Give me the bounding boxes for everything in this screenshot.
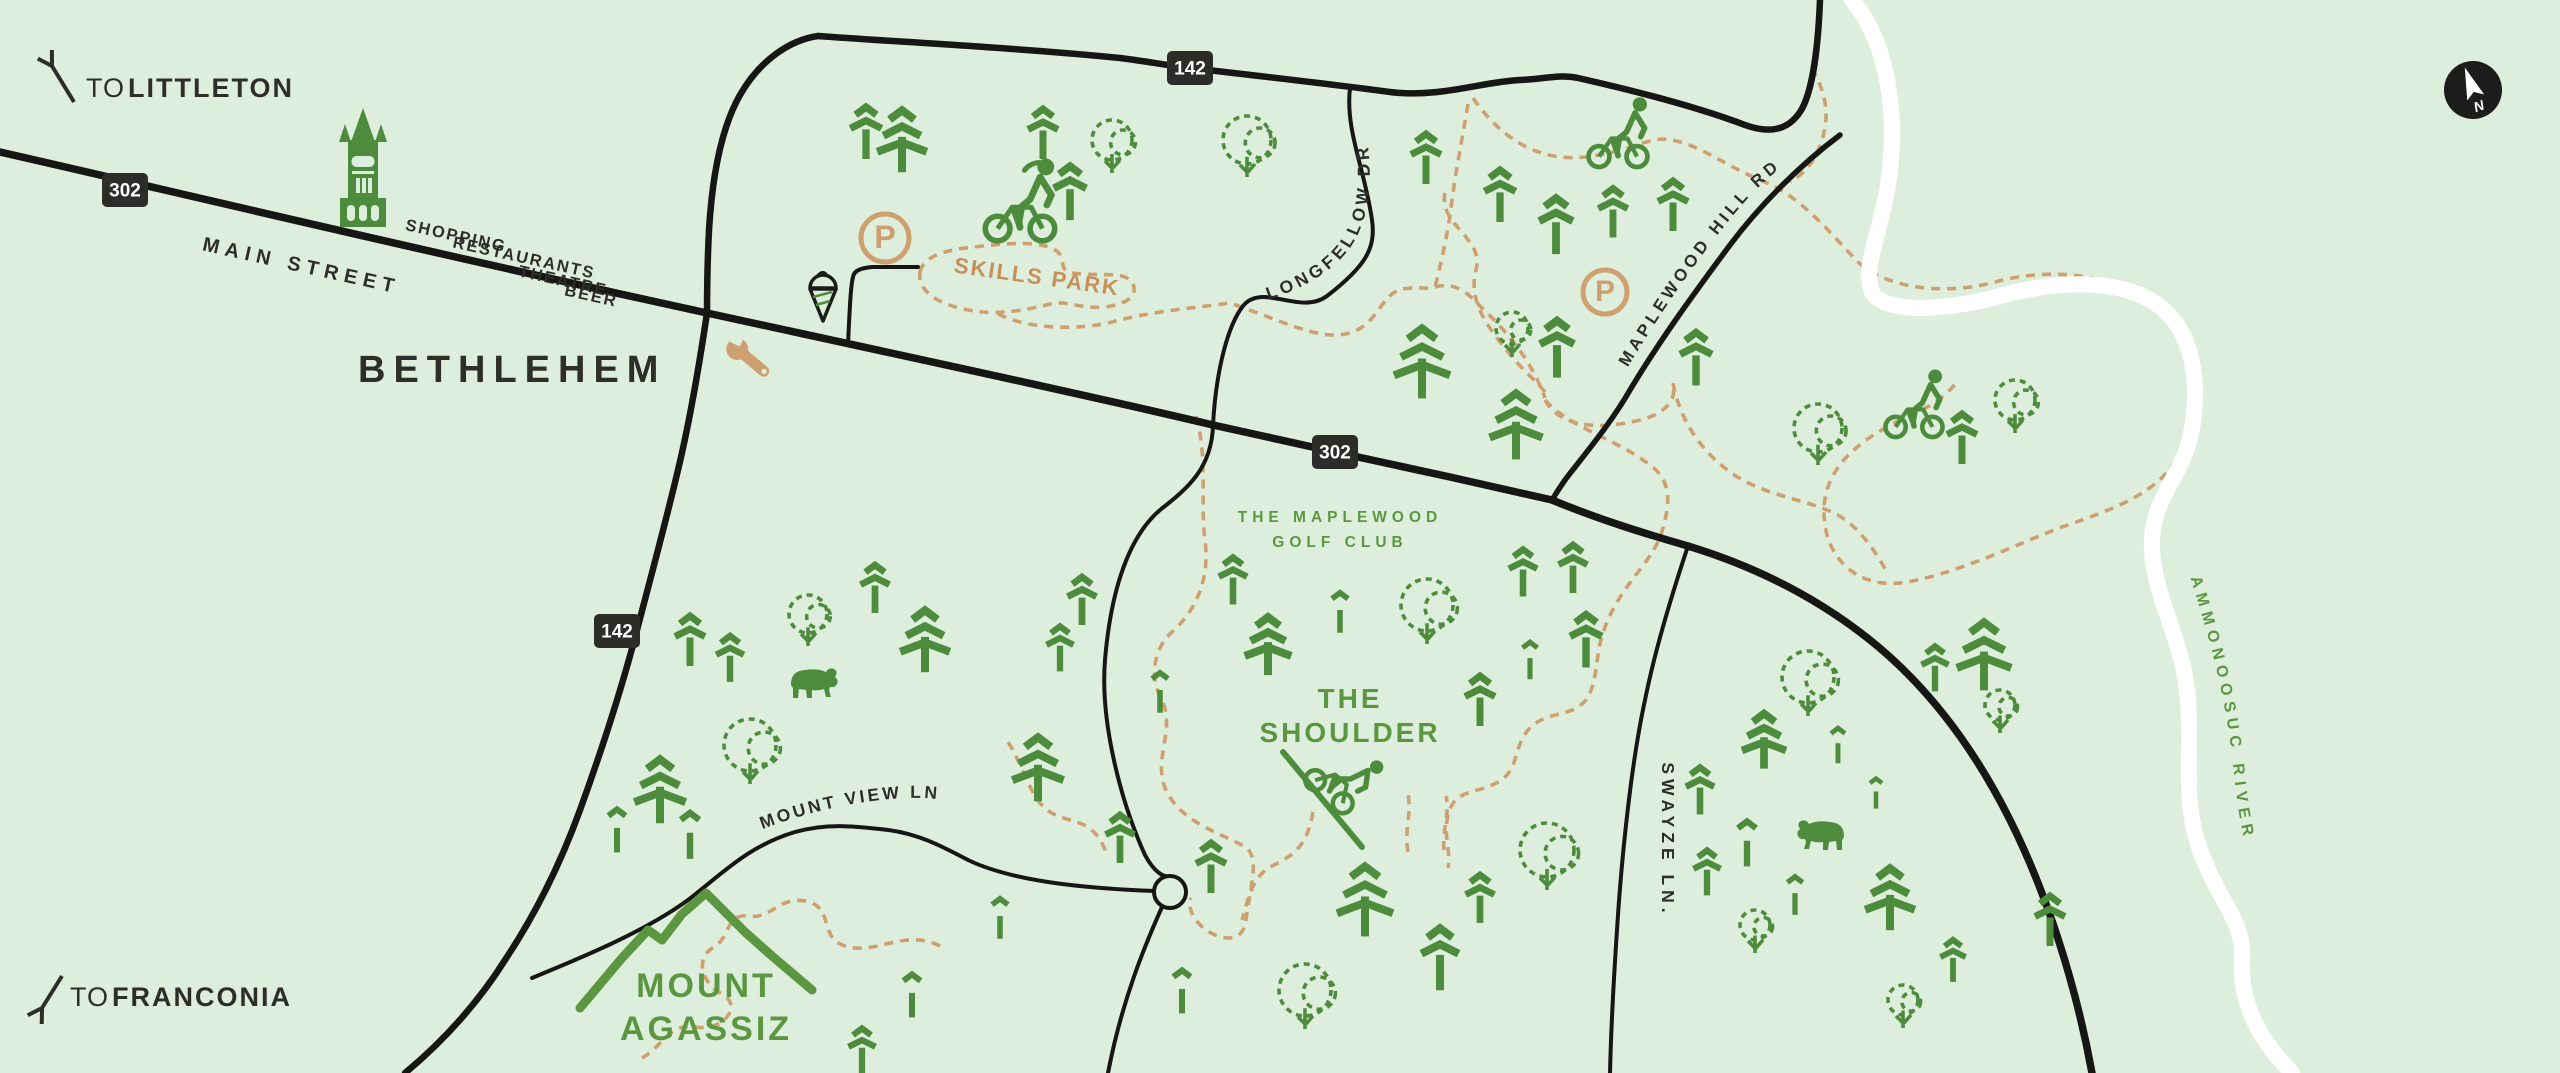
route-badge-number: 302 <box>109 181 141 202</box>
cul-de-sac-circle <box>1154 876 1186 908</box>
route-badge-number: 142 <box>1174 59 1206 80</box>
golf-club-label-line1: THE MAPLEWOOD <box>1238 509 1443 526</box>
direction-prefix: TO <box>70 982 109 1012</box>
direction-name: LITTLETON <box>128 73 294 103</box>
route-badge: 142 <box>594 614 640 648</box>
route-badge-number: 142 <box>601 622 633 643</box>
parking-letter: P <box>874 219 896 255</box>
trail-map[interactable]: 302142302142LONGFELLOW DRMAPLEWOOD HILL … <box>0 0 2560 1073</box>
direction-name: FRANCONIA <box>112 982 292 1012</box>
church-window <box>368 178 372 193</box>
direction-prefix: TO <box>86 73 125 103</box>
the-shoulder-label-line2: SHOULDER <box>1259 717 1440 748</box>
the-shoulder-label-line1: THE <box>1318 683 1383 714</box>
church-clock <box>352 156 375 167</box>
mount-agassiz-label-line1: MOUNT <box>636 967 776 1005</box>
church-window <box>362 178 366 193</box>
swayze-ln-label: SWAYZE LN. <box>1658 762 1678 917</box>
golf-club-label-line2: GOLF CLUB <box>1272 534 1407 551</box>
church-window <box>356 178 360 193</box>
church-base-window <box>359 205 367 221</box>
map-canvas[interactable]: 302142302142LONGFELLOW DRMAPLEWOOD HILL … <box>0 0 2560 1073</box>
route-badge: 302 <box>1312 435 1358 469</box>
route-badge-number: 302 <box>1319 443 1351 464</box>
church-base-window <box>347 205 355 221</box>
mount-agassiz-label-line2: AGASSIZ <box>620 1010 792 1048</box>
rider-head <box>1928 369 1942 383</box>
rider-head <box>1633 97 1647 111</box>
parking-letter: P <box>1595 275 1615 308</box>
town-label-bethlehem: BETHLEHEM <box>358 349 666 391</box>
church-base-window <box>371 205 379 221</box>
route-badge: 142 <box>1167 51 1213 85</box>
church-band <box>352 171 374 174</box>
route-badge: 302 <box>102 173 148 207</box>
